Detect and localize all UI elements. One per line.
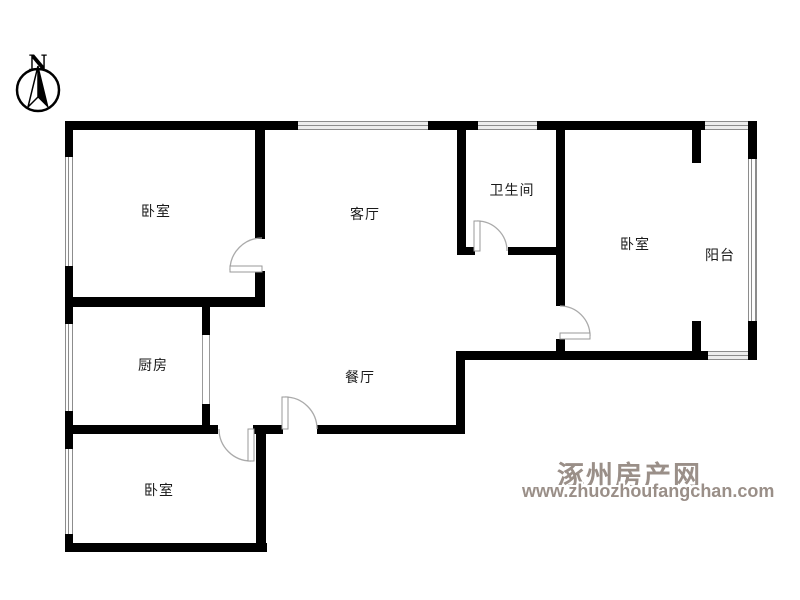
room-label-dining-room: 餐厅	[345, 367, 375, 387]
room-label-living-room: 客厅	[350, 204, 380, 224]
room-label-bedroom-bottom: 卧室	[144, 480, 174, 500]
room-label-bedroom-right: 卧室	[620, 234, 650, 254]
door-bathroom	[474, 221, 507, 251]
room-label-kitchen: 厨房	[138, 355, 168, 375]
door-dining	[282, 397, 317, 429]
room-label-bathroom: 卫生间	[490, 180, 535, 200]
door-bedroom-top-left	[230, 238, 262, 272]
compass-north-label: N	[28, 50, 47, 75]
door-bedroom-right	[560, 306, 590, 339]
doors-and-compass-layer	[0, 0, 800, 600]
floor-plan-canvas: N 卧室 客厅 卫生间 卧室 阳台 厨房 餐厅 卧室 涿州房产网 www.zhu…	[0, 0, 800, 600]
door-bedroom-bottom	[219, 429, 254, 461]
room-label-bedroom-top-left: 卧室	[141, 201, 171, 221]
room-label-balcony: 阳台	[705, 245, 735, 265]
watermark-site-url: www.zhuozhoufangchan.com	[522, 481, 774, 502]
